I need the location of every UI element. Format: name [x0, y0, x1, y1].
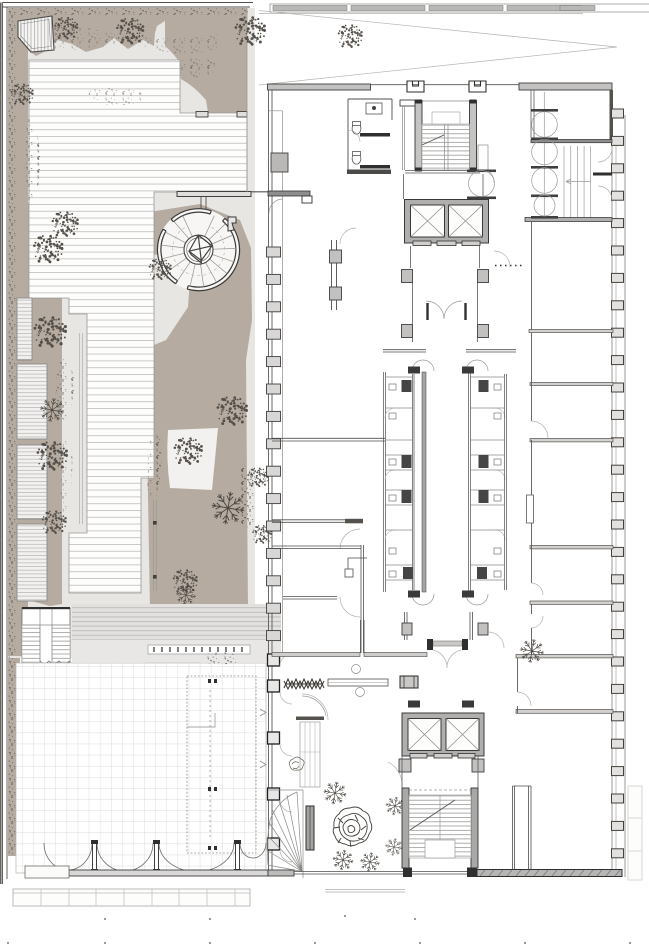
svg-text:2.85: 2.85	[0, 694, 2, 700]
svg-text:3.25: 3.25	[0, 294, 2, 300]
svg-text:2.10: 2.10	[0, 94, 2, 100]
svg-text:4.60: 4.60	[0, 494, 2, 500]
